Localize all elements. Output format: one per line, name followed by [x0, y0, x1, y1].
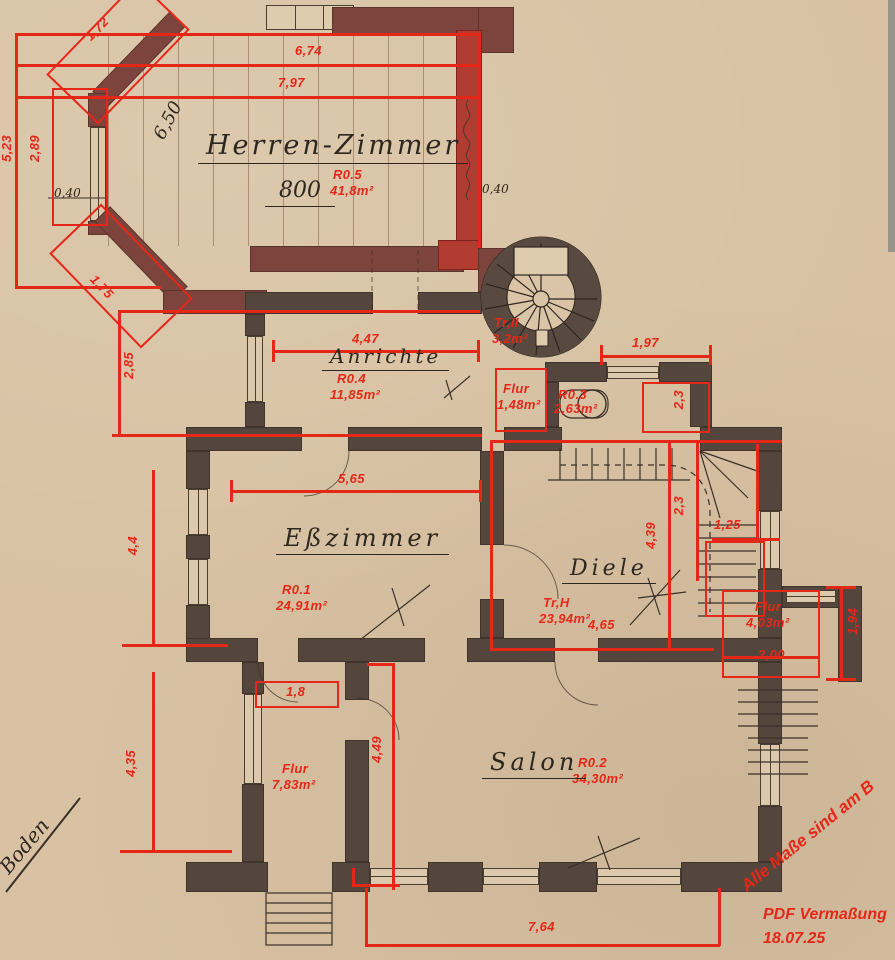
dim-entry-v: 1,94: [846, 608, 860, 635]
room-id-anrichte: R0.4: [337, 372, 366, 386]
dimension-line: [478, 33, 481, 248]
dim-entry-h: 2,00: [758, 648, 785, 662]
room-label-esszimmer: Eßzimmer: [276, 524, 449, 555]
dimension-line: [668, 440, 671, 649]
room-id-tr2: Tr,II: [494, 316, 519, 330]
dim-stair-h: 1,25: [714, 518, 741, 532]
stamp-tool: PDF Vermaßung: [763, 906, 887, 924]
dimension-line: [392, 664, 395, 890]
dim-bay-outer: 5,23: [0, 135, 14, 162]
door-arcs: [258, 250, 598, 740]
room-label-flur-west: Flur: [282, 762, 308, 776]
dimension-line: [490, 440, 782, 443]
room-label-herrenzimmer: Herren-Zimmer: [198, 130, 468, 164]
dim-salon-h: 7,64: [528, 920, 555, 934]
hand-offset-right: 0,40: [482, 182, 509, 196]
room-area-esszimmer: 24,91m²: [276, 599, 327, 613]
dimension-line: [826, 678, 856, 681]
survey-marks: [360, 376, 686, 870]
room-area-flur-klein: 1,48m²: [497, 398, 541, 412]
dimension-line: [272, 340, 275, 362]
dimension-line: [490, 440, 493, 651]
dimension-line: [600, 355, 712, 358]
room-label-flur-eingang: Flur: [755, 600, 781, 614]
dimension-line: [230, 480, 233, 502]
dimension-line: [112, 434, 482, 437]
dim-flur-h: 1,8: [286, 685, 305, 699]
hand-800: 800: [265, 178, 335, 207]
dim-ess-v: 4,4: [126, 536, 140, 555]
dimension-line: [120, 850, 232, 853]
dim-top-a: 6,74: [295, 44, 322, 58]
dimension-line: [709, 345, 712, 365]
dimension-line: [152, 470, 155, 646]
hand-offset-left: 0,40: [54, 186, 81, 200]
room-area-tr2: 3,2m²: [492, 332, 528, 346]
dimension-line: [490, 648, 714, 651]
room-area-anrichte: 11,85m²: [330, 388, 380, 402]
dim-wc-v: 2,3: [672, 390, 686, 409]
dimension-line: [15, 33, 18, 289]
room-label-anrichte: Anrichte: [322, 344, 449, 371]
stamp-date: 18.07.25: [763, 930, 825, 948]
dim-diele-v: 4,39: [644, 522, 658, 549]
dimension-line: [756, 444, 759, 541]
room-id-herrenzimmer: R0.5: [333, 168, 362, 182]
dimension-line: [152, 672, 155, 852]
dim-salon-v: 4,49: [370, 736, 384, 763]
dim-ess-h: 5,65: [338, 472, 365, 486]
dimension-line: [352, 884, 400, 887]
dimension-line: [122, 644, 228, 647]
dimension-line: [479, 480, 482, 502]
dimension-line: [352, 868, 355, 886]
dimension-line: [230, 490, 482, 493]
dim-stair-v: 2,3: [672, 496, 686, 515]
room-area-wc: 2,63m²: [554, 402, 598, 416]
dimension-line: [826, 586, 856, 589]
room-id-esszimmer: R0.1: [282, 583, 311, 597]
dim-flur-v: 4,35: [124, 750, 138, 777]
room-label-flur-klein: Flur: [503, 382, 529, 396]
room-area-diele: 23,94m²: [539, 612, 590, 626]
dim-diele-h: 4,65: [588, 618, 615, 632]
dim-top-b: 7,97: [278, 76, 305, 90]
room-area-flur-west: 7,83m²: [272, 778, 316, 792]
floor-plan-canvas: 1,72 6,74 7,97 5,23 2,89 1,75 2,85 4,47 …: [0, 0, 895, 960]
dimension-line: [118, 310, 480, 313]
dimension-line: [365, 888, 368, 946]
entry-steps: [738, 690, 818, 774]
dim-bay-inner: 2,89: [28, 135, 42, 162]
room-label-salon: Salon: [482, 748, 586, 779]
porch-steps: [266, 893, 332, 945]
room-label-diele: Diele: [562, 556, 656, 584]
dim-tower-h: 1,97: [632, 336, 659, 350]
dimension-line: [696, 440, 699, 581]
dimension-line: [718, 888, 721, 946]
room-area-herrenzimmer: 41,8m²: [330, 184, 374, 198]
room-id-diele: Tr,H: [543, 596, 570, 610]
dimension-line: [840, 588, 843, 680]
dim-anrichte-v: 2,85: [122, 352, 136, 379]
dimension-line: [477, 340, 480, 362]
room-area-flur-eingang: 4,03m²: [746, 616, 790, 630]
dimension-line: [367, 663, 395, 666]
dimension-line: [600, 345, 603, 365]
dimension-line: [365, 944, 720, 947]
